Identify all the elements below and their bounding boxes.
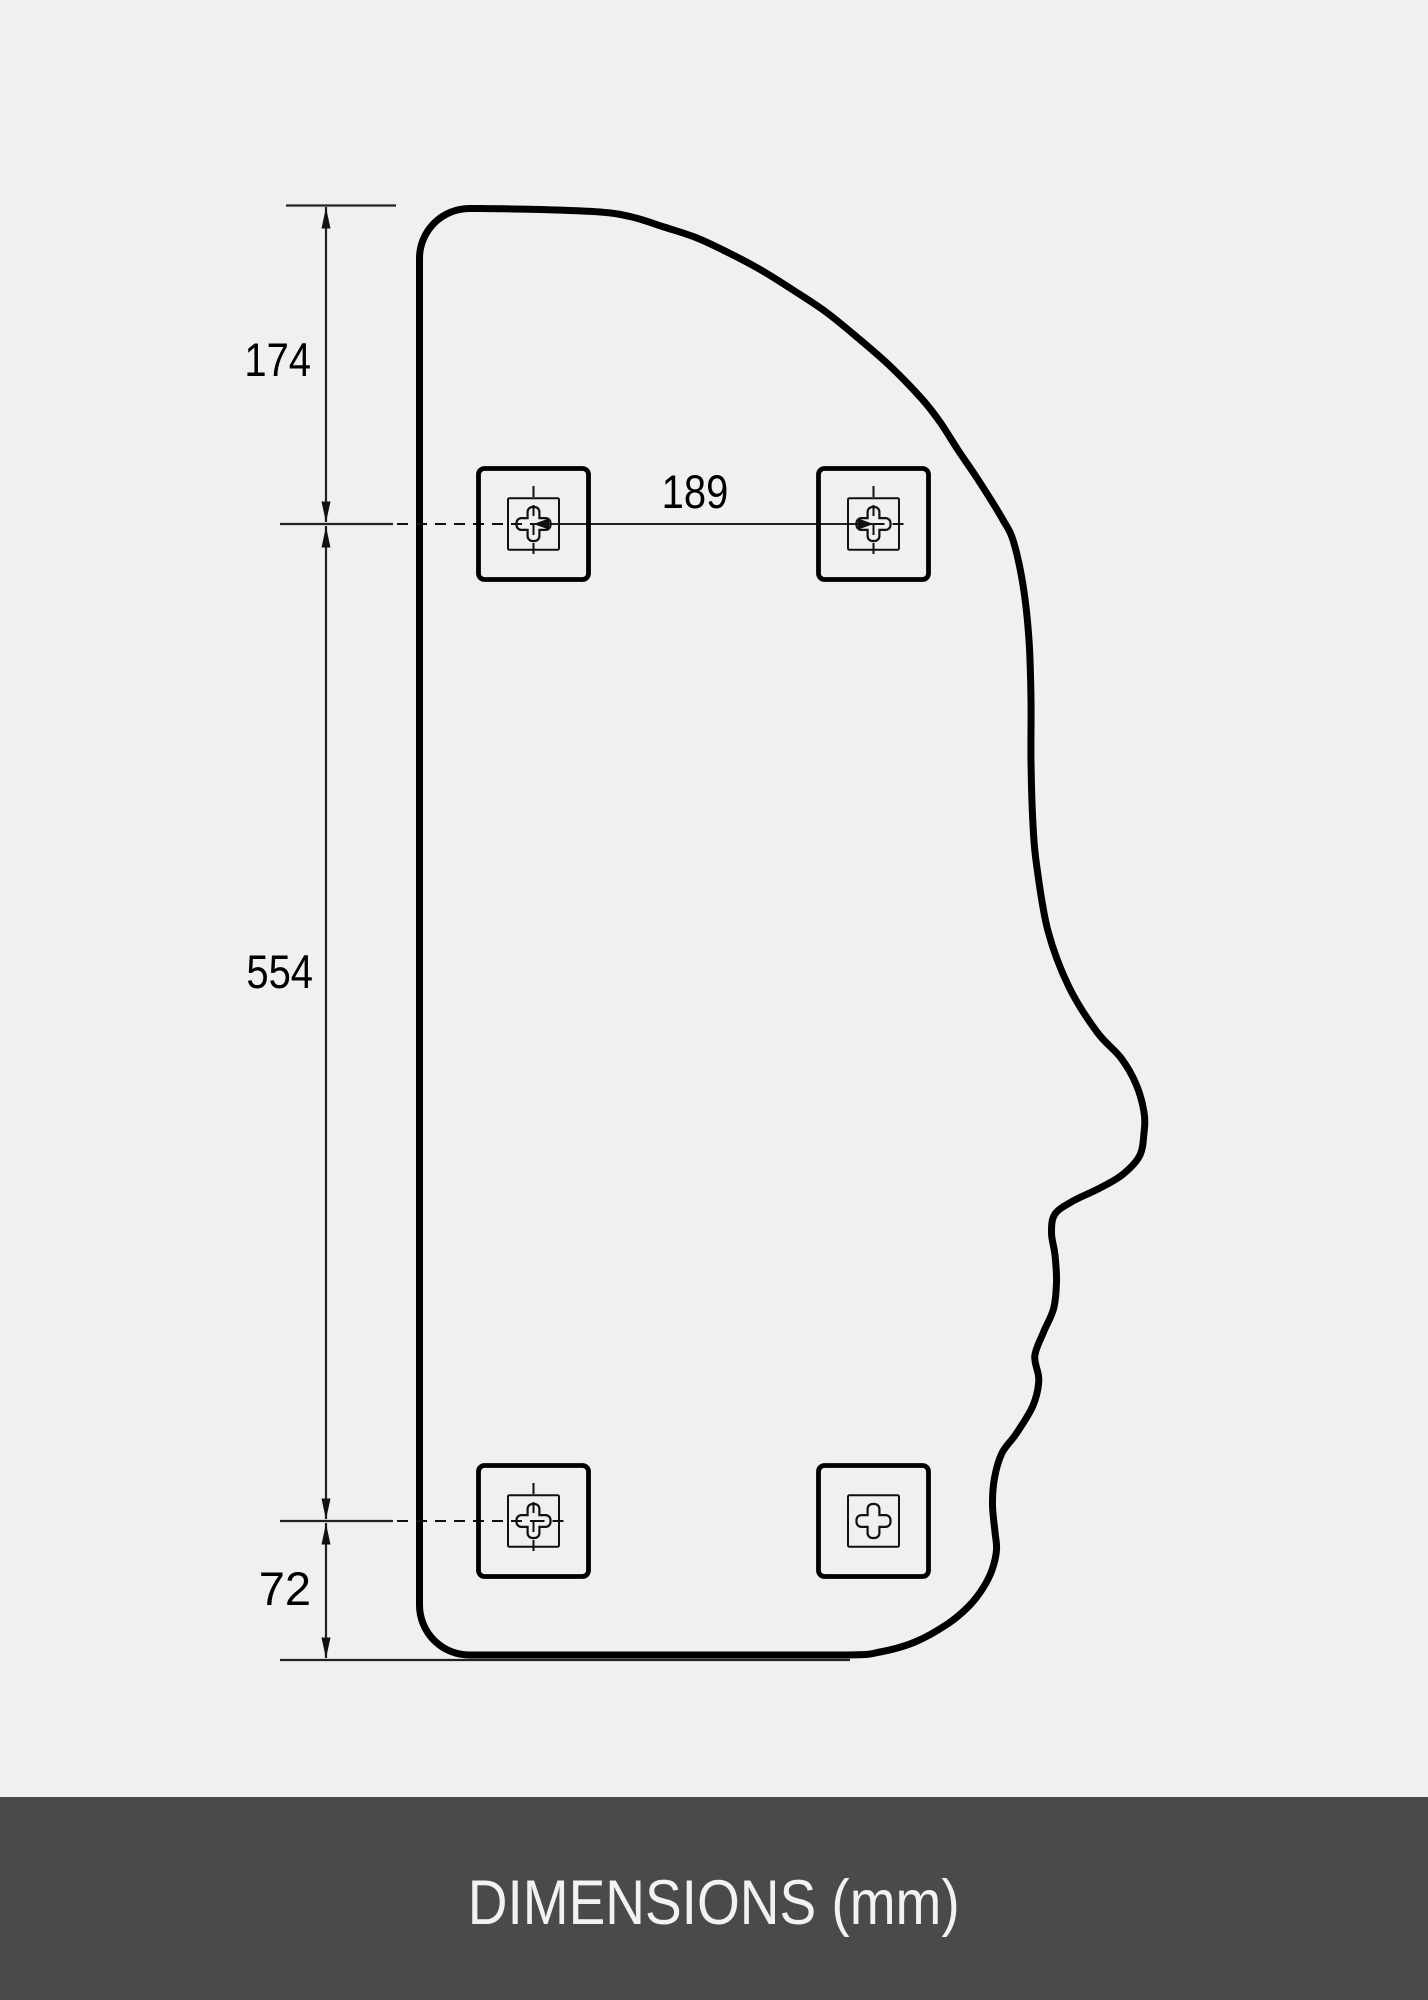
svg-text:174: 174 bbox=[244, 335, 311, 387]
svg-text:72: 72 bbox=[259, 1562, 311, 1615]
svg-text:189: 189 bbox=[662, 467, 729, 519]
svg-text:554: 554 bbox=[246, 947, 313, 999]
